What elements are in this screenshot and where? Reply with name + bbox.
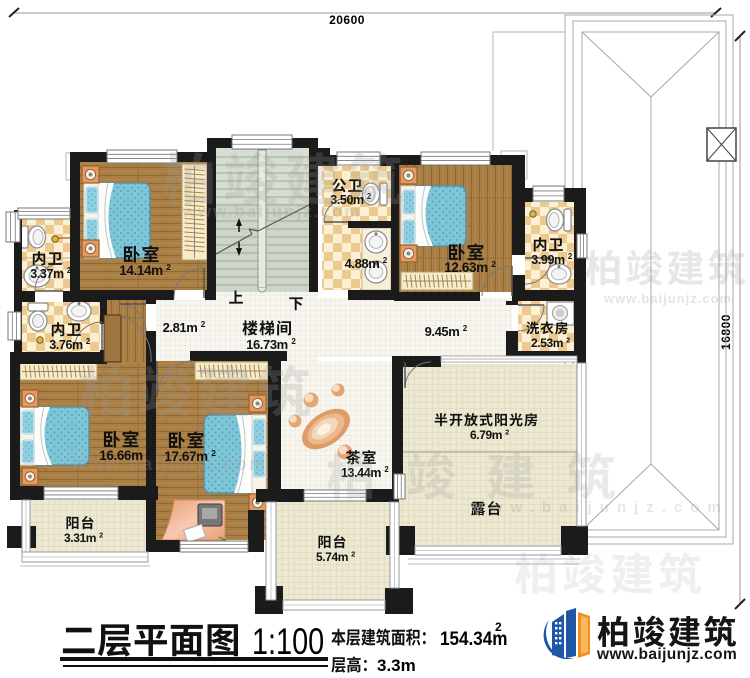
svg-text:2: 2	[201, 320, 206, 329]
svg-text:3.31m: 3.31m	[64, 531, 96, 545]
svg-text:20600: 20600	[329, 13, 365, 27]
svg-text:12.63m: 12.63m	[444, 260, 488, 275]
svg-text:2: 2	[463, 324, 468, 333]
svg-text:6.79m: 6.79m	[470, 428, 502, 442]
svg-text:2: 2	[86, 337, 91, 346]
svg-text:www.baijunjz.com: www.baijunjz.com	[71, 454, 267, 474]
svg-text:2: 2	[566, 335, 570, 344]
svg-text:2: 2	[351, 549, 355, 558]
svg-text:5.74m: 5.74m	[316, 550, 348, 564]
svg-text:2: 2	[383, 256, 388, 265]
svg-text:2: 2	[505, 427, 509, 436]
svg-text:3.3m: 3.3m	[377, 656, 416, 675]
svg-text:16.73m: 16.73m	[246, 337, 288, 352]
svg-text:9.45m: 9.45m	[425, 324, 460, 339]
svg-text:2: 2	[67, 266, 72, 275]
svg-text:2: 2	[495, 620, 502, 634]
svg-text:2: 2	[291, 337, 296, 346]
svg-text:14.14m: 14.14m	[119, 263, 163, 278]
svg-text:4.88m: 4.88m	[345, 256, 380, 271]
svg-text:2: 2	[99, 530, 103, 539]
svg-text:www.baijunjz.com: www.baijunjz.com	[596, 646, 737, 663]
svg-text:3.76m: 3.76m	[49, 338, 83, 352]
svg-text:www.baijunjz.com: www.baijunjz.com	[182, 202, 362, 221]
svg-text:2.53m: 2.53m	[531, 336, 563, 350]
svg-text:2: 2	[384, 465, 389, 474]
svg-text:www.baijunjz.com: www.baijunjz.com	[470, 499, 728, 516]
svg-text:1:100: 1:100	[252, 622, 324, 663]
svg-text:3.37m: 3.37m	[30, 267, 64, 281]
svg-text:2.81m: 2.81m	[163, 320, 198, 335]
svg-text:2: 2	[166, 262, 171, 272]
svg-text:3.99m: 3.99m	[531, 253, 565, 267]
svg-text:2: 2	[568, 252, 573, 261]
svg-text:www.baijunjz.com: www.baijunjz.com	[603, 291, 732, 306]
svg-text:2: 2	[491, 259, 496, 269]
